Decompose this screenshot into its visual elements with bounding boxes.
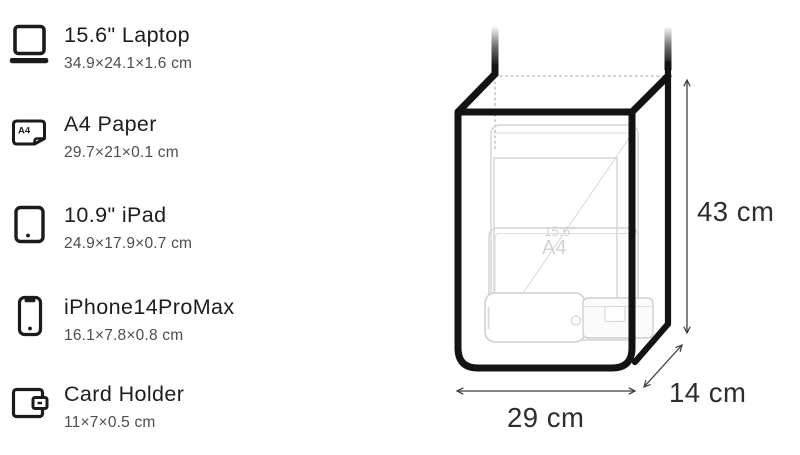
bag-top-left-edge	[458, 74, 495, 112]
ipad-icon	[9, 203, 49, 247]
list-item-iphone: iPhone14ProMax 16.1×7.8×0.8 cm	[9, 295, 235, 345]
bag-capacity-diagram: 15.6" A4	[440, 0, 800, 455]
iphone-icon	[9, 295, 49, 339]
card-holder-icon	[9, 382, 49, 426]
list-item-ipad: 10.9" iPad 24.9×17.9×0.7 cm	[9, 203, 192, 253]
item-title: 10.9" iPad	[64, 203, 192, 228]
list-item-laptop: 15.6" Laptop 34.9×24.1×1.6 cm	[9, 23, 192, 73]
a4-icon-label: A4	[18, 126, 31, 137]
width-label: 29 cm	[507, 402, 584, 433]
height-label: 43 cm	[697, 196, 774, 227]
capacity-diagram-page: 15.6" Laptop 34.9×24.1×1.6 cm A4 A4 Pape…	[0, 0, 800, 455]
laptop-icon	[9, 23, 49, 67]
item-dims: 29.7×21×0.1 cm	[64, 143, 179, 162]
item-dims: 34.9×24.1×1.6 cm	[64, 54, 192, 73]
ghost-iphone	[485, 293, 585, 342]
item-title: iPhone14ProMax	[64, 295, 235, 320]
bag-top-right-edge	[632, 76, 668, 112]
list-item-card-holder: Card Holder 11×7×0.5 cm	[9, 382, 184, 432]
item-title: 15.6" Laptop	[64, 23, 192, 48]
depth-label: 14 cm	[669, 377, 746, 408]
item-dims: 24.9×17.9×0.7 cm	[64, 234, 192, 253]
a4-paper-icon: A4	[9, 112, 49, 156]
ghost-card-holder	[583, 298, 653, 338]
item-dims: 11×7×0.5 cm	[64, 413, 184, 432]
list-item-a4-paper: A4 A4 Paper 29.7×21×0.1 cm	[9, 112, 179, 162]
item-dims: 16.1×7.8×0.8 cm	[64, 326, 235, 345]
ghost-a4-label: A4	[542, 237, 566, 259]
item-title: A4 Paper	[64, 112, 179, 137]
item-title: Card Holder	[64, 382, 184, 407]
